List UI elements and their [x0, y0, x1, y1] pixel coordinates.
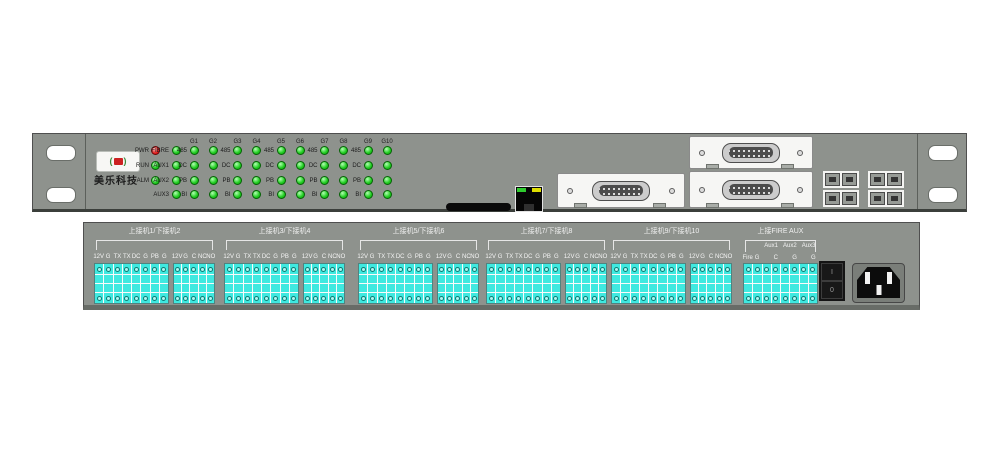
terminal-cell	[552, 275, 560, 283]
terminal-screw	[370, 296, 375, 301]
terminal-screw	[236, 267, 241, 272]
terminal-cell	[182, 275, 189, 283]
terminal-cell	[141, 275, 149, 283]
terminal-screw	[746, 267, 751, 272]
terminal-cell	[487, 264, 495, 274]
terminal-cell	[496, 264, 504, 274]
terminal-label: DC	[524, 253, 533, 261]
fiber-slot	[825, 173, 840, 186]
aux-label: FIBRE	[135, 147, 169, 155]
terminal-cell	[141, 293, 149, 303]
terminal-screw	[692, 296, 697, 301]
terminal-cell	[207, 275, 214, 283]
terminal-cell	[533, 275, 541, 283]
terminal-screw	[575, 267, 580, 272]
terminal-cell	[378, 293, 386, 303]
terminal-cell	[182, 284, 189, 292]
terminal-cell	[631, 264, 639, 274]
terminal-cell	[387, 293, 395, 303]
terminal-cell	[123, 284, 131, 292]
channel-led	[383, 176, 392, 185]
terminal-screw	[439, 296, 444, 301]
terminal-cell	[359, 264, 367, 274]
terminal-cell	[396, 275, 404, 283]
terminal-label: C	[192, 253, 196, 261]
terminal-cell	[649, 275, 657, 283]
terminal-cell	[95, 264, 103, 274]
terminal-cell	[790, 275, 798, 283]
terminal-label: 12V	[93, 253, 104, 261]
terminal-cell	[304, 293, 311, 303]
terminal-screw	[725, 296, 730, 301]
led-column-header: G8	[336, 138, 352, 146]
terminal-screw	[567, 296, 572, 301]
terminal-screw	[783, 267, 788, 272]
terminal-screw	[792, 267, 797, 272]
terminal-cell	[207, 264, 214, 274]
terminal-cell	[329, 264, 336, 274]
terminal-screw	[669, 296, 674, 301]
fiber-slot	[842, 192, 857, 205]
terminal-cell	[463, 275, 470, 283]
led-column-header: G1	[186, 138, 202, 146]
terminal-label: NO	[206, 253, 215, 261]
plate-screw	[669, 188, 675, 194]
terminal-cell	[800, 293, 808, 303]
terminal-cell	[552, 264, 560, 274]
terminal-cell	[207, 284, 214, 292]
group-label: 上接FIRE AUX	[743, 227, 818, 236]
terminal-label: 12V	[302, 253, 313, 261]
terminal-cell	[190, 275, 197, 283]
terminal-screw	[143, 296, 148, 301]
terminal-screw	[678, 267, 683, 272]
terminal-cell	[132, 284, 140, 292]
terminal-cell	[691, 275, 698, 283]
relay-terminal-block	[173, 263, 215, 304]
terminal-label: G	[755, 254, 760, 262]
terminal-cell	[691, 264, 698, 274]
terminal-screw	[124, 296, 129, 301]
terminal-cell	[809, 293, 817, 303]
led-column-header: G2	[205, 138, 221, 146]
terminal-screw	[783, 296, 788, 301]
db15-plate	[557, 173, 685, 208]
terminal-screw	[134, 267, 139, 272]
terminal-cell	[691, 293, 698, 303]
terminal-cell	[543, 275, 551, 283]
terminal-screw	[379, 267, 384, 272]
terminal-cell	[744, 275, 752, 283]
terminal-screw	[773, 267, 778, 272]
channel-pair-label: BI	[213, 191, 231, 199]
terminal-label: NO	[598, 253, 607, 261]
aux-sub-label: Aux1	[764, 242, 778, 250]
relay-terminal-block	[437, 263, 479, 304]
terminal-label: C	[709, 253, 713, 261]
terminal-screw	[575, 296, 580, 301]
channel-pair-label: 485	[300, 147, 318, 155]
terminal-cell	[244, 264, 252, 274]
terminal-screw	[161, 267, 166, 272]
terminal-screw	[208, 296, 213, 301]
terminal-cell	[262, 275, 270, 283]
terminal-cell	[668, 284, 676, 292]
terminal-label: G	[370, 253, 375, 261]
terminal-cell	[123, 293, 131, 303]
terminal-cell	[438, 284, 445, 292]
channel-led	[364, 146, 373, 155]
terminal-cell	[244, 293, 252, 303]
terminal-cell	[790, 264, 798, 274]
channel-pair-label: BI	[256, 191, 274, 199]
aux-label: AUX3	[135, 191, 169, 199]
terminal-screw	[583, 267, 588, 272]
terminal-cell	[151, 284, 159, 292]
terminal-cell	[329, 275, 336, 283]
plate-tab	[574, 203, 587, 208]
terminal-cell	[781, 293, 789, 303]
terminal-screw	[291, 267, 296, 272]
terminal-cell	[621, 293, 629, 303]
terminal-cell	[151, 293, 159, 303]
terminal-cell	[160, 264, 168, 274]
terminal-screw	[725, 267, 730, 272]
group-label: 上接机1/下接机2	[96, 227, 213, 236]
fiber-port	[868, 190, 904, 207]
db15-plate	[689, 136, 813, 169]
terminal-screw	[236, 296, 241, 301]
terminal-cell	[271, 284, 279, 292]
terminal-cell	[104, 293, 112, 303]
terminal-screw	[553, 296, 558, 301]
terminal-screw	[370, 267, 375, 272]
terminal-cell	[707, 275, 714, 283]
channel-led	[320, 176, 329, 185]
terminal-cell	[677, 284, 685, 292]
terminal-cell	[790, 284, 798, 292]
terminal-screw	[143, 267, 148, 272]
terminal-cell	[271, 293, 279, 303]
terminal-cell	[262, 293, 270, 303]
terminal-cell	[599, 284, 606, 292]
terminal-cell	[772, 264, 780, 274]
terminal-cell	[104, 275, 112, 283]
relay-terminal-block	[303, 263, 345, 304]
terminal-cell	[716, 275, 723, 283]
terminal-screw	[614, 267, 619, 272]
terminal-cell	[582, 275, 589, 283]
fiber-port	[823, 190, 859, 207]
terminal-cell	[424, 293, 432, 303]
terminal-cell	[496, 293, 504, 303]
terminal-cell	[753, 275, 761, 283]
terminal-screw	[321, 296, 326, 301]
terminal-cell	[359, 275, 367, 283]
terminal-cell	[337, 264, 344, 274]
terminal-label: C	[774, 254, 778, 262]
led-column-header: G6	[292, 138, 308, 146]
terminal-cell	[95, 293, 103, 303]
terminal-cell	[506, 293, 514, 303]
terminal-cell	[253, 284, 261, 292]
terminal-screw	[801, 267, 806, 272]
channel-led	[383, 161, 392, 170]
terminal-cell	[677, 264, 685, 274]
terminal-cell	[621, 264, 629, 274]
terminal-cell	[359, 293, 367, 303]
terminal-cell	[524, 293, 532, 303]
terminal-cell	[290, 275, 298, 283]
terminal-cell	[591, 284, 598, 292]
terminal-cell	[463, 284, 470, 292]
channel-led	[320, 190, 329, 199]
terminal-screw	[361, 296, 366, 301]
terminal-screw	[600, 296, 605, 301]
terminal-cell	[591, 293, 598, 303]
terminal-screw	[407, 296, 412, 301]
terminal-label: G	[426, 253, 431, 261]
terminal-screw	[115, 296, 120, 301]
main-terminal-block	[94, 263, 169, 304]
terminal-screw	[472, 296, 477, 301]
terminal-screw	[191, 267, 196, 272]
terminal-cell	[454, 284, 461, 292]
channel-led	[277, 190, 286, 199]
terminal-cell	[533, 264, 541, 274]
terminal-cell	[337, 284, 344, 292]
terminal-cell	[329, 284, 336, 292]
fiber-port	[823, 171, 859, 188]
terminal-screw	[623, 267, 628, 272]
main-terminal-block	[486, 263, 561, 304]
channel-pair-label: PB	[213, 177, 231, 185]
terminal-cell	[424, 275, 432, 283]
terminal-label: G	[273, 253, 278, 261]
terminal-cell	[359, 284, 367, 292]
terminal-label: G	[183, 253, 188, 261]
terminal-cell	[471, 275, 478, 283]
terminal-cell	[281, 275, 289, 283]
fiber-slot	[887, 192, 902, 205]
power-switch-off: 0	[821, 281, 843, 299]
terminal-cell	[114, 275, 122, 283]
terminal-cell	[707, 293, 714, 303]
terminal-screw	[535, 267, 540, 272]
terminal-screw	[614, 296, 619, 301]
terminal-screw	[115, 267, 120, 272]
ethernet-port	[515, 186, 543, 212]
terminal-cell	[378, 264, 386, 274]
terminal-screw	[535, 296, 540, 301]
group-bracket	[226, 240, 343, 250]
terminal-cell	[552, 293, 560, 303]
terminal-cell	[582, 293, 589, 303]
terminal-label: C	[584, 253, 588, 261]
terminal-cell	[649, 264, 657, 274]
terminal-cell	[304, 264, 311, 274]
terminal-label: G	[660, 253, 665, 261]
terminal-label: C	[456, 253, 460, 261]
terminal-screw	[245, 267, 250, 272]
terminal-cell	[160, 275, 168, 283]
terminal-cell	[524, 264, 532, 274]
terminal-label: 12V	[564, 253, 575, 261]
terminal-cell	[699, 284, 706, 292]
terminal-cell	[533, 293, 541, 303]
terminal-cell	[271, 264, 279, 274]
terminal-screw	[746, 296, 751, 301]
terminal-cell	[190, 284, 197, 292]
channel-led	[233, 176, 242, 185]
terminal-cell	[763, 264, 771, 274]
terminal-cell	[244, 284, 252, 292]
terminal-cell	[658, 284, 666, 292]
led-column-header: G3	[230, 138, 246, 146]
rear-panel: 上接机1/下接机212VGTXTXDCGPBG12VGCNCNO上接机3/下接机…	[83, 222, 920, 310]
plate-tab	[781, 164, 794, 169]
terminal-screw	[660, 267, 665, 272]
channel-led	[320, 146, 329, 155]
terminal-cell	[582, 284, 589, 292]
power-pin	[865, 272, 870, 284]
terminal-screw	[717, 267, 722, 272]
terminal-cell	[281, 293, 289, 303]
terminal-cell	[744, 284, 752, 292]
terminal-cell	[612, 264, 620, 274]
terminal-screw	[755, 296, 760, 301]
terminal-screw	[425, 296, 430, 301]
terminal-label: DC	[132, 253, 141, 261]
terminal-cell	[446, 293, 453, 303]
channel-pair-label: BI	[169, 191, 187, 199]
terminal-cell	[368, 293, 376, 303]
terminal-cell	[454, 275, 461, 283]
terminal-cell	[114, 264, 122, 274]
db15-pins	[729, 147, 773, 158]
terminal-cell	[724, 293, 731, 303]
terminal-cell	[378, 284, 386, 292]
channel-led	[277, 176, 286, 185]
terminal-cell	[424, 284, 432, 292]
terminal-label: PB	[281, 253, 289, 261]
db15-plate	[689, 171, 813, 208]
terminal-cell	[415, 293, 423, 303]
terminal-cell	[506, 264, 514, 274]
terminal-label: DC	[649, 253, 658, 261]
link-led	[517, 188, 526, 192]
terminal-cell	[438, 293, 445, 303]
terminal-cell	[781, 284, 789, 292]
terminal-screw	[447, 267, 452, 272]
terminal-screw	[134, 296, 139, 301]
terminal-cell	[781, 264, 789, 274]
channel-pair-label: DC	[300, 162, 318, 170]
terminal-cell	[566, 284, 573, 292]
channel-pair-label: DC	[213, 162, 231, 170]
aux-sub-label: Aux3	[802, 242, 816, 250]
terminal-cell	[591, 264, 598, 274]
terminal-screw	[264, 267, 269, 272]
terminal-cell	[487, 275, 495, 283]
main-terminal-block	[224, 263, 299, 304]
terminal-cell	[151, 275, 159, 283]
terminal-cell	[763, 275, 771, 283]
channel-led	[277, 146, 286, 155]
terminal-cell	[337, 275, 344, 283]
terminal-label: 12V	[357, 253, 368, 261]
terminal-cell	[387, 275, 395, 283]
terminal-cell	[114, 293, 122, 303]
channel-led	[364, 190, 373, 199]
terminal-screw	[692, 267, 697, 272]
terminal-cell	[368, 284, 376, 292]
terminal-label: TX	[123, 253, 131, 261]
terminal-cell	[506, 275, 514, 283]
aux-label: AUX2	[135, 177, 169, 185]
plate-screw	[797, 187, 803, 193]
aux-label: AUX1	[135, 162, 169, 170]
terminal-cell	[496, 275, 504, 283]
terminal-screw	[273, 267, 278, 272]
channel-led	[233, 146, 242, 155]
terminal-cell	[114, 284, 122, 292]
terminal-cell	[378, 275, 386, 283]
terminal-screw	[498, 267, 503, 272]
terminal-cell	[424, 264, 432, 274]
terminal-cell	[471, 293, 478, 303]
terminal-cell	[244, 275, 252, 283]
channel-led	[383, 146, 392, 155]
db15-connector	[722, 180, 780, 200]
terminal-label: TX	[631, 253, 639, 261]
channel-led	[277, 161, 286, 170]
terminal-label: NO	[470, 253, 479, 261]
terminal-cell	[677, 293, 685, 303]
card-slot	[446, 203, 511, 211]
terminal-cell	[405, 284, 413, 292]
channel-led	[364, 176, 373, 185]
terminal-screw	[227, 267, 232, 272]
terminal-cell	[724, 264, 731, 274]
terminal-cell	[199, 293, 206, 303]
db15-connector	[722, 143, 780, 163]
channel-led	[190, 161, 199, 170]
terminal-cell	[95, 275, 103, 283]
terminal-screw	[152, 296, 157, 301]
terminal-cell	[446, 275, 453, 283]
channel-led	[233, 190, 242, 199]
terminal-cell	[574, 275, 581, 283]
fiber-slot	[842, 173, 857, 186]
terminal-cell	[471, 264, 478, 274]
terminal-screw	[338, 267, 343, 272]
db15-pins	[729, 184, 773, 195]
terminal-screw	[282, 267, 287, 272]
terminal-screw	[191, 296, 196, 301]
terminal-cell	[396, 293, 404, 303]
channel-pair-label: PB	[169, 177, 187, 185]
channel-pair-label: BI	[343, 191, 361, 199]
terminal-screw	[764, 267, 769, 272]
terminal-screw	[678, 296, 683, 301]
terminal-screw	[600, 267, 605, 272]
terminal-screw	[464, 267, 469, 272]
terminal-label: G	[106, 253, 111, 261]
terminal-cell	[599, 293, 606, 303]
channel-pair-label: PB	[343, 177, 361, 185]
terminal-label: TX	[506, 253, 514, 261]
